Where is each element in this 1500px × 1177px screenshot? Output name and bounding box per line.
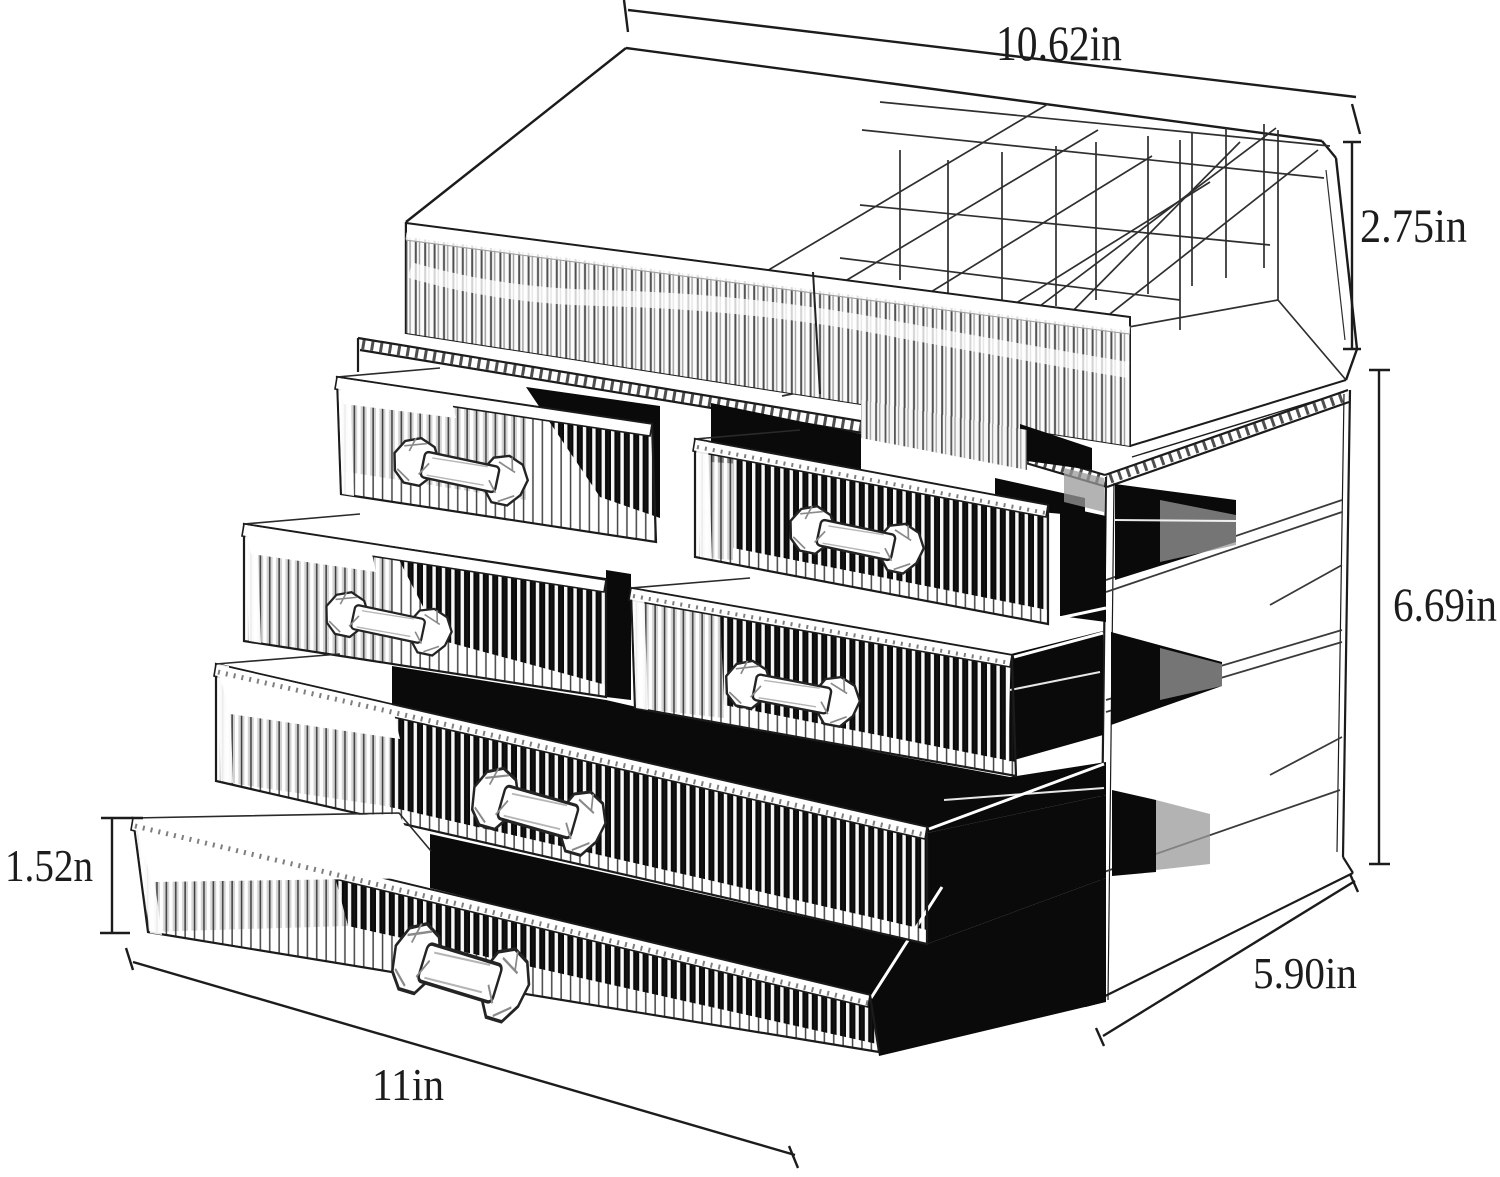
svg-text:1.52n: 1.52n: [5, 840, 93, 891]
svg-text:5.90in: 5.90in: [1253, 949, 1357, 998]
svg-text:6.69in: 6.69in: [1393, 579, 1497, 632]
svg-text:11in: 11in: [372, 1059, 444, 1110]
svg-text:2.75in: 2.75in: [1360, 200, 1467, 253]
svg-text:10.62in: 10.62in: [996, 15, 1122, 71]
